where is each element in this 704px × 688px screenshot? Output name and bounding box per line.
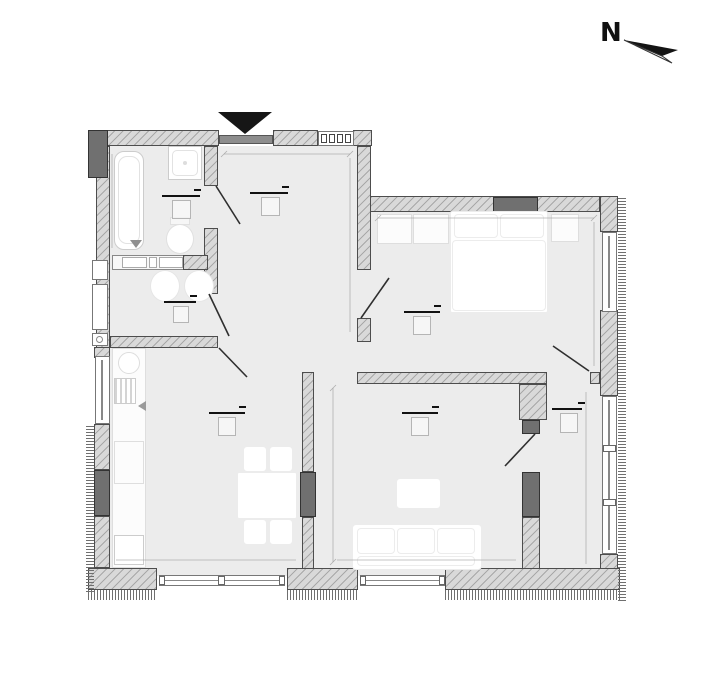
exterior-wall-segment bbox=[600, 196, 618, 232]
sofa-cushion bbox=[437, 528, 475, 554]
sofa-seat-edge bbox=[357, 556, 475, 566]
wall-pier bbox=[522, 420, 540, 434]
exterior-wall-segment bbox=[94, 516, 110, 568]
bidet-bowl bbox=[184, 270, 214, 302]
room-label-box bbox=[172, 200, 191, 219]
interior-wall-segment bbox=[590, 372, 600, 384]
vent-cell bbox=[345, 134, 351, 143]
washbasin bbox=[159, 257, 183, 268]
entrance-threshold bbox=[219, 135, 273, 144]
insulation-strip bbox=[618, 196, 626, 601]
washbasin bbox=[122, 257, 147, 268]
exterior-wall-segment bbox=[353, 130, 372, 146]
wardrobe bbox=[377, 214, 412, 244]
wall-pier bbox=[94, 470, 110, 516]
wall-pier bbox=[522, 472, 540, 517]
pillow bbox=[454, 214, 498, 238]
room-label-tick bbox=[578, 402, 585, 404]
window-mullion bbox=[603, 499, 616, 506]
kitchen-appliance bbox=[114, 441, 144, 484]
bed-blanket bbox=[452, 240, 546, 311]
insulation-strip bbox=[287, 590, 358, 600]
room-label-tick bbox=[190, 295, 197, 297]
interior-wall-segment bbox=[110, 336, 218, 348]
utility-meter-box bbox=[92, 260, 108, 280]
fridge bbox=[114, 535, 144, 565]
interior-wall-segment bbox=[522, 517, 540, 570]
sofa-cushion bbox=[397, 528, 435, 554]
stove bbox=[114, 378, 136, 404]
window-mullion bbox=[439, 576, 445, 585]
room-label-line bbox=[552, 408, 582, 410]
wall-pier bbox=[493, 197, 538, 212]
room-label-line bbox=[162, 195, 200, 197]
interior-wall-segment bbox=[357, 318, 371, 342]
vent-cell bbox=[337, 134, 343, 143]
window-mullion bbox=[360, 576, 366, 585]
room-label-line bbox=[404, 311, 440, 313]
insulation-strip bbox=[445, 590, 622, 600]
interior-wall-segment bbox=[357, 372, 547, 384]
room-label-line bbox=[250, 192, 288, 194]
room-label-line bbox=[402, 412, 438, 414]
window-mullion bbox=[159, 576, 165, 585]
exterior-wall-segment bbox=[273, 130, 318, 146]
coffee-table bbox=[396, 478, 441, 509]
room-label-tick bbox=[434, 305, 441, 307]
nightstand bbox=[551, 214, 579, 242]
window-mullion bbox=[603, 445, 616, 452]
vent-cell bbox=[329, 134, 335, 143]
interior-wall-segment bbox=[183, 255, 208, 270]
interior-wall-segment bbox=[519, 384, 547, 420]
window-glazing bbox=[608, 236, 610, 308]
window-glazing bbox=[365, 580, 440, 581]
chair bbox=[243, 519, 267, 545]
exterior-wall-segment bbox=[88, 568, 157, 590]
cabinet-panel bbox=[149, 257, 157, 268]
floor-plan: N bbox=[0, 0, 704, 688]
room-label-box bbox=[413, 316, 431, 335]
room-label-box bbox=[411, 417, 429, 436]
interior-wall-segment bbox=[302, 517, 314, 570]
exterior-wall-segment bbox=[445, 568, 620, 590]
insulation-strip bbox=[86, 424, 94, 592]
window-glazing bbox=[101, 360, 103, 420]
exterior-wall-segment bbox=[600, 310, 618, 396]
room-label-tick bbox=[194, 189, 201, 191]
room-label-box bbox=[560, 413, 578, 433]
interior-wall-segment bbox=[357, 146, 371, 270]
room-label-line bbox=[209, 412, 245, 414]
window-mullion bbox=[218, 576, 225, 585]
pillow bbox=[500, 214, 544, 238]
kitchen-sink bbox=[118, 352, 140, 374]
sofa-cushion bbox=[357, 528, 395, 554]
chair bbox=[269, 446, 293, 472]
room-label-tick bbox=[239, 406, 246, 408]
shower-drain-icon bbox=[183, 161, 187, 165]
window-glazing bbox=[608, 400, 610, 550]
room-label-line bbox=[164, 301, 196, 303]
north-arrow-icon bbox=[624, 40, 678, 56]
bathtub-inner bbox=[118, 156, 140, 244]
window-mullion bbox=[279, 576, 285, 585]
room-label-box bbox=[261, 197, 280, 216]
exterior-wall-segment bbox=[287, 568, 358, 590]
room-label-tick bbox=[282, 186, 289, 188]
room-label-box bbox=[173, 306, 189, 323]
vent-cell bbox=[321, 134, 327, 143]
north-arrow-tail bbox=[624, 40, 672, 63]
toilet-bowl bbox=[150, 270, 180, 302]
exterior-wall-segment bbox=[96, 130, 219, 146]
meter-dial-icon bbox=[96, 336, 103, 343]
toilet-bowl bbox=[166, 224, 194, 254]
dining-table bbox=[237, 472, 297, 519]
north-label: N bbox=[600, 18, 622, 48]
exterior-wall-segment bbox=[94, 424, 110, 470]
exterior-wall-segment bbox=[370, 196, 600, 212]
insulation-strip bbox=[88, 590, 157, 600]
entrance-arrow-marker bbox=[218, 112, 272, 134]
chair bbox=[269, 519, 293, 545]
interior-wall-segment bbox=[302, 372, 314, 472]
wardrobe bbox=[413, 214, 449, 244]
room-label-tick bbox=[432, 406, 439, 408]
wall-pier bbox=[300, 472, 316, 517]
wall-pier bbox=[88, 130, 108, 178]
room-label-box bbox=[218, 417, 236, 436]
interior-wall-segment bbox=[204, 146, 218, 186]
chair bbox=[243, 446, 267, 472]
sink-marker-icon bbox=[138, 401, 146, 411]
shaft-niche bbox=[92, 284, 108, 330]
plumbing-marker-icon bbox=[130, 240, 142, 248]
